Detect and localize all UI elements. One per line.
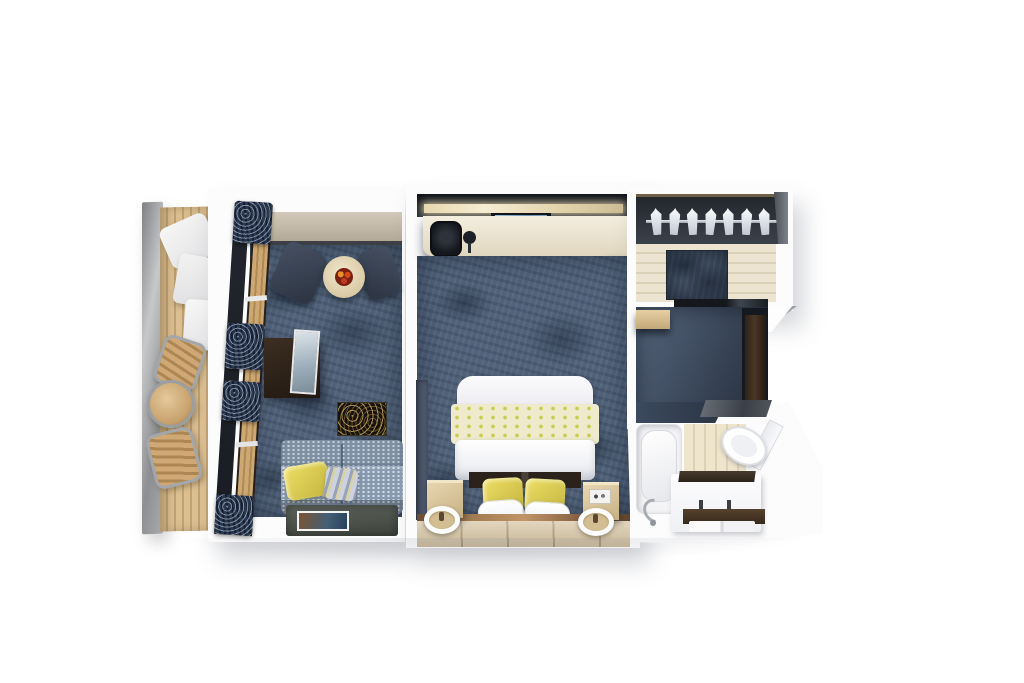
desk-lamp — [463, 231, 476, 244]
balcony-table — [147, 380, 195, 428]
floorplan-render — [0, 0, 1024, 683]
nightstand — [583, 482, 619, 520]
vanity-counter-edge — [678, 471, 756, 482]
living-room-walls — [208, 189, 405, 542]
armchair — [354, 244, 404, 303]
entry-shelf — [636, 310, 670, 329]
wardrobe-walls — [627, 187, 793, 311]
entry-wall-wedge-shadow — [777, 306, 797, 321]
cove-light — [424, 204, 623, 213]
hanger — [650, 208, 663, 236]
sofa-seat — [281, 466, 403, 504]
entry-corridor — [0, 0, 1024, 683]
hanger — [722, 208, 734, 236]
balcony-railing — [142, 202, 163, 535]
balcony-deck — [160, 207, 213, 532]
hanger — [741, 208, 753, 235]
entry-left-wall — [627, 307, 636, 429]
vanity-mirror-top — [700, 400, 772, 417]
bedroom-left-wall — [416, 380, 428, 520]
corridor-floor-extension — [636, 402, 726, 423]
bathtub-basin — [641, 430, 677, 502]
bedroom-walls — [406, 185, 640, 548]
curtain — [221, 380, 261, 422]
living-carpet — [250, 245, 402, 517]
lounger — [172, 253, 222, 310]
bed — [440, 370, 610, 540]
ground-shadow — [170, 538, 810, 562]
sconce-light — [424, 506, 460, 534]
desk — [423, 216, 632, 256]
entrance-door — [745, 315, 766, 405]
bathtub-faucet — [638, 494, 672, 528]
sofa-seam — [341, 444, 343, 504]
hanger — [758, 208, 771, 236]
bedroom-tv-screen — [495, 215, 547, 225]
cocktail-table — [323, 256, 365, 298]
toilet-tank — [746, 419, 784, 471]
splash-wall-tiles — [684, 424, 746, 476]
window-frame — [214, 202, 250, 534]
armchair — [267, 239, 331, 307]
closet-back-panel — [636, 194, 786, 244]
bed-pillow-white — [523, 500, 571, 531]
desk-lamp-stem — [468, 243, 471, 253]
bed-pillow-yellow — [482, 477, 524, 513]
toilet-bowl — [714, 418, 774, 473]
sofa-pillow-yellow — [282, 460, 331, 501]
window-mullion — [236, 441, 258, 448]
deck-chair — [151, 332, 208, 393]
closet-side-panel — [774, 192, 788, 244]
vanity-faucet — [699, 500, 703, 510]
desk-return-cabinet — [610, 256, 632, 324]
toilet-seat — [727, 430, 761, 461]
nightstand-tray — [589, 489, 611, 504]
curtain — [232, 200, 273, 244]
bronze-runner — [417, 514, 630, 522]
headboard — [469, 472, 581, 488]
vanity-faucet — [727, 500, 731, 510]
living-ceiling-band — [250, 212, 402, 245]
balcony — [0, 0, 1024, 683]
entry-wall-wedge — [768, 306, 812, 332]
sofa — [281, 440, 403, 514]
curtain — [214, 494, 254, 536]
tv-sideboard — [264, 338, 320, 398]
sofa-front — [281, 500, 403, 514]
bedroom-carpet — [417, 256, 630, 516]
door-recess — [742, 308, 768, 420]
wardrobe — [0, 0, 1024, 683]
bathroom — [0, 0, 1024, 683]
wall-art — [337, 402, 387, 436]
lounger — [182, 299, 223, 352]
desk-chair — [430, 221, 462, 257]
towel-shelf — [683, 509, 765, 524]
magazine — [297, 511, 349, 531]
hanging-rail — [646, 220, 778, 223]
bathtub — [636, 424, 682, 514]
sofa-back — [281, 440, 403, 470]
hanger — [704, 208, 717, 236]
living-room — [0, 0, 1024, 683]
sofa-pillow-striped — [323, 466, 358, 501]
corridor-floor — [636, 307, 768, 424]
sconce-light — [578, 508, 614, 536]
bedroom-tv — [491, 213, 551, 227]
deck-chair — [144, 425, 204, 491]
hanger — [687, 208, 699, 235]
curtain — [224, 322, 265, 370]
lounger — [157, 211, 221, 272]
hanger — [668, 208, 680, 236]
sconce-detail — [593, 514, 598, 523]
window-mullion — [245, 295, 267, 302]
bedroom — [0, 0, 1024, 683]
window-wood-column — [233, 204, 273, 537]
closet-mat — [666, 250, 728, 300]
bathtub-faucet-knob — [650, 520, 656, 526]
bed-foot — [457, 376, 593, 410]
bed-floral-runner — [451, 404, 599, 444]
nightstand — [427, 480, 463, 518]
closet-threshold — [674, 299, 768, 307]
window-wall — [214, 202, 273, 536]
sconce-detail — [439, 512, 444, 521]
bed-duvet — [455, 440, 595, 480]
towels — [689, 521, 755, 532]
vanity — [671, 474, 761, 532]
living-tv — [290, 329, 320, 395]
bed-pillow-yellow — [524, 478, 566, 514]
bed-pillow-white — [477, 498, 525, 529]
closet-floor — [636, 244, 776, 302]
bedroom-headwall — [417, 194, 630, 217]
coffee-table — [286, 505, 398, 536]
bathroom-walls — [627, 402, 823, 545]
flower-centerpiece — [335, 268, 353, 286]
